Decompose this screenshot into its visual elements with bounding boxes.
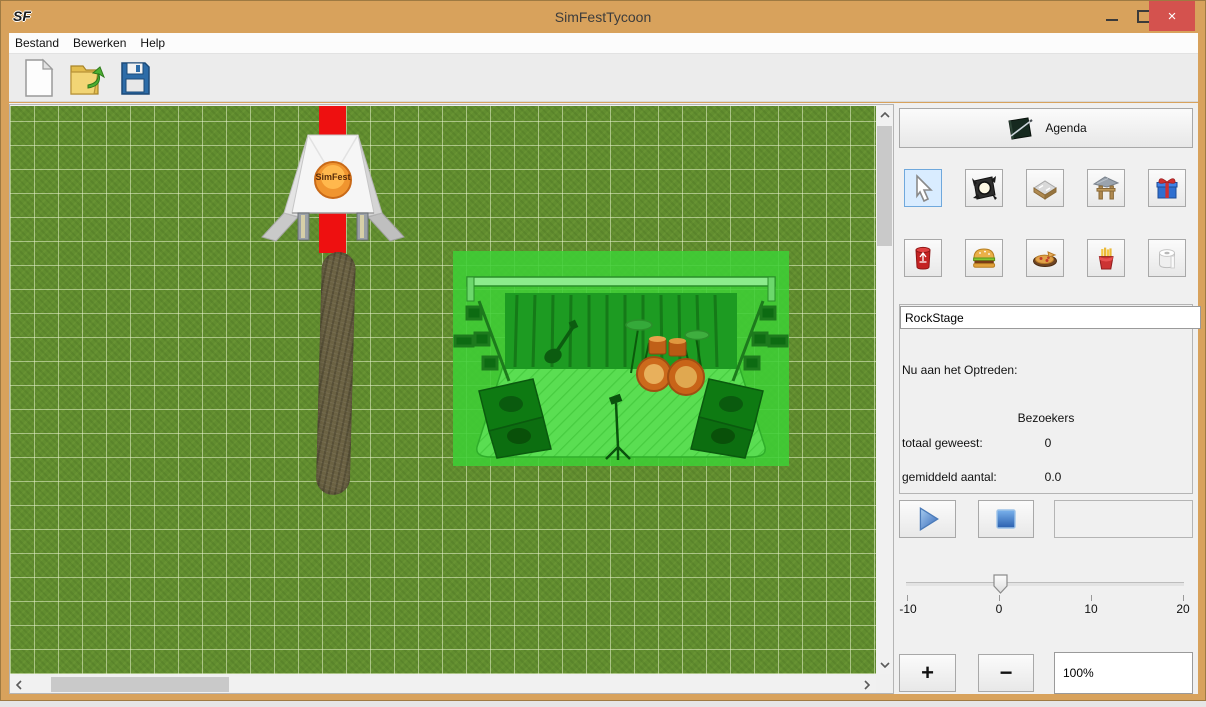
chevron-right-icon <box>864 680 870 690</box>
pizza-icon <box>1031 244 1059 272</box>
desktop-background <box>0 701 1206 707</box>
scroll-down-button[interactable] <box>876 656 893 674</box>
entrance-gate-icon <box>1092 174 1120 202</box>
festival-ground-canvas[interactable]: SimFest <box>10 106 876 674</box>
open-file-icon <box>68 58 106 98</box>
minus-icon: − <box>1000 662 1013 684</box>
scroll-left-button[interactable] <box>10 676 28 693</box>
vertical-scrollbar-thumb[interactable] <box>877 126 892 246</box>
spotlight-icon <box>970 174 998 202</box>
play-button[interactable] <box>899 500 956 538</box>
new-file-icon <box>22 58 56 98</box>
festival-tent[interactable]: SimFest <box>256 125 410 245</box>
fries-icon <box>1092 244 1120 272</box>
tick-minus10 <box>907 595 908 601</box>
visitors-header: Bezoekers <box>991 411 1101 425</box>
app-window: SF SimFestTycoon × Bestand Bewerken Help <box>0 0 1206 701</box>
stage-name-input[interactable] <box>900 306 1201 329</box>
tool-entrance-gate[interactable] <box>1087 169 1125 207</box>
toolbar <box>9 54 1198 102</box>
stop-button[interactable] <box>978 500 1034 538</box>
menu-bestand[interactable]: Bestand <box>9 33 66 53</box>
scroll-up-button[interactable] <box>876 106 893 124</box>
close-icon: × <box>1168 8 1177 25</box>
trash-can-icon <box>909 244 937 272</box>
zoom-level-field[interactable] <box>1054 652 1193 694</box>
horizontal-scrollbar-thumb[interactable] <box>51 677 229 692</box>
total-visitors-label: totaal geweest: <box>902 436 983 450</box>
tool-trash-can[interactable] <box>904 239 942 277</box>
speed-slider-thumb[interactable] <box>993 574 1008 594</box>
tent-entrance-poles <box>298 213 368 240</box>
performance-display-box <box>1054 500 1193 538</box>
chevron-down-icon <box>880 662 890 668</box>
tool-gift[interactable] <box>1148 169 1186 207</box>
tick-20 <box>1183 595 1184 601</box>
minimize-icon <box>1106 19 1118 21</box>
close-button[interactable]: × <box>1149 1 1195 31</box>
tool-pizza[interactable] <box>1026 239 1064 277</box>
dirt-path[interactable] <box>316 252 356 496</box>
tick-label-20: 20 <box>1168 602 1198 616</box>
speed-slider-track[interactable] <box>906 582 1184 586</box>
chevron-up-icon <box>880 112 890 118</box>
agenda-book-icon <box>1005 115 1035 141</box>
tick-0 <box>999 595 1000 601</box>
plus-icon: + <box>921 662 934 684</box>
zoom-out-button[interactable]: − <box>978 654 1034 692</box>
zoom-in-button[interactable]: + <box>899 654 956 692</box>
tool-toilet-paper[interactable] <box>1148 239 1186 277</box>
new-file-button[interactable] <box>19 57 59 99</box>
toilet-paper-icon <box>1153 244 1181 272</box>
gift-icon <box>1153 174 1181 202</box>
rock-stage-selected[interactable] <box>453 251 789 466</box>
stage-info-groupbox <box>899 304 1193 494</box>
select-cursor-icon <box>909 174 937 202</box>
horizontal-scrollbar[interactable] <box>10 676 876 693</box>
chevron-left-icon <box>16 680 22 690</box>
tick-label-0: 0 <box>984 602 1014 616</box>
hamburger-icon <box>970 244 998 272</box>
tool-fries[interactable] <box>1087 239 1125 277</box>
minimize-button[interactable] <box>1097 1 1127 31</box>
vertical-scrollbar[interactable] <box>876 106 893 674</box>
average-visitors-value: 0.0 <box>1023 470 1083 484</box>
menubar: Bestand Bewerken Help <box>9 33 1198 54</box>
tick-label-10: 10 <box>1076 602 1106 616</box>
total-visitors-value: 0 <box>1018 436 1078 450</box>
agenda-button[interactable]: Agenda <box>899 108 1193 148</box>
menu-help[interactable]: Help <box>133 33 172 53</box>
screen: SF SimFestTycoon × Bestand Bewerken Help <box>0 0 1206 707</box>
save-file-icon <box>119 59 151 97</box>
tick-10 <box>1091 595 1092 601</box>
scroll-right-button[interactable] <box>858 676 876 693</box>
tick-label-minus10: -10 <box>893 602 923 616</box>
tool-select-cursor[interactable] <box>904 169 942 207</box>
titlebar[interactable]: SF SimFestTycoon × <box>1 1 1205 33</box>
stop-icon <box>994 507 1018 531</box>
average-visitors-label: gemiddeld aantal: <box>902 470 997 484</box>
play-icon <box>915 506 941 532</box>
road-tile-icon <box>1031 174 1059 202</box>
tool-road-tile[interactable] <box>1026 169 1064 207</box>
tool-hamburger[interactable] <box>965 239 1003 277</box>
agenda-label: Agenda <box>1045 121 1086 135</box>
window-title: SimFestTycoon <box>1 9 1205 25</box>
now-performing-label: Nu aan het Optreden: <box>902 363 1017 377</box>
save-file-button[interactable] <box>115 57 155 99</box>
open-file-button[interactable] <box>67 57 107 99</box>
tent-logo: SimFest <box>315 162 351 198</box>
tool-spotlight[interactable] <box>965 169 1003 207</box>
menu-bewerken[interactable]: Bewerken <box>66 33 133 53</box>
svg-text:SimFest: SimFest <box>315 172 350 182</box>
